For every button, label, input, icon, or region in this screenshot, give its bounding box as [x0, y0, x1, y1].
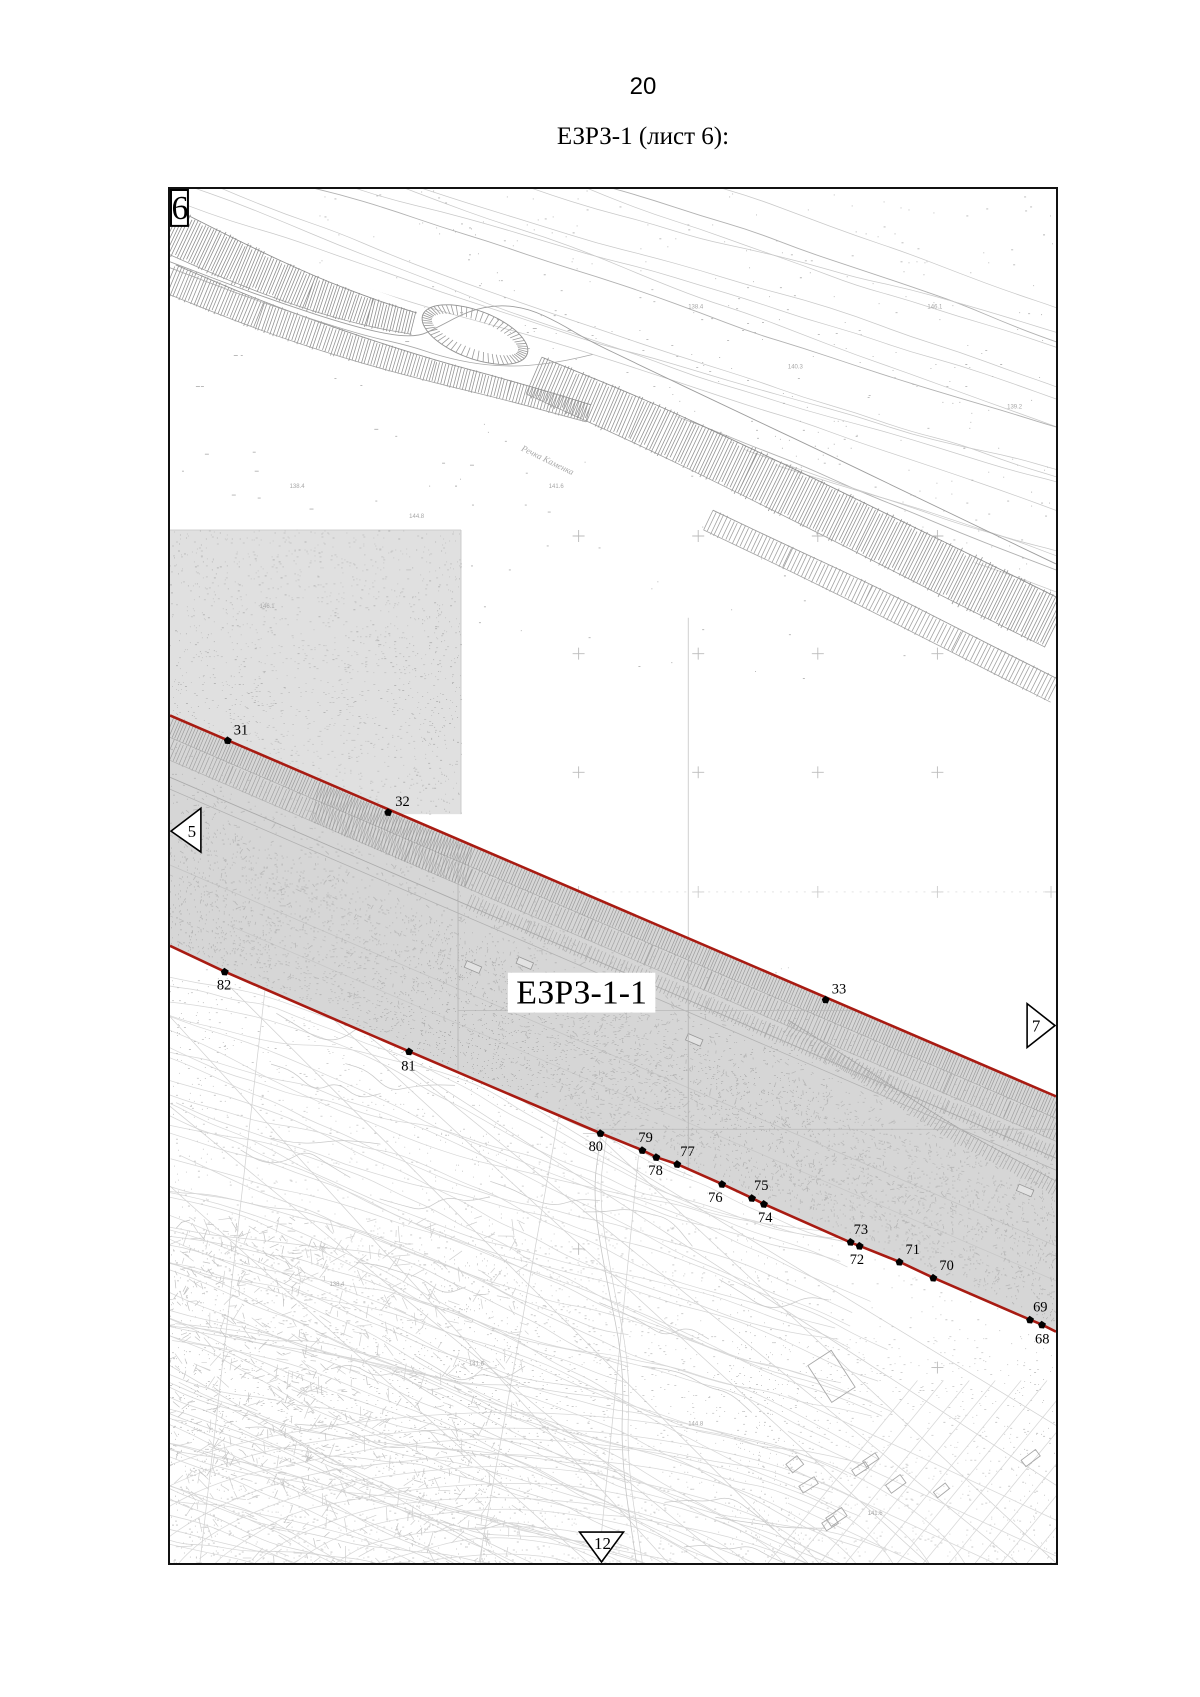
svg-text:76: 76	[708, 1190, 722, 1206]
svg-text:33: 33	[832, 982, 846, 998]
svg-text:78: 78	[648, 1163, 662, 1179]
svg-text:5: 5	[188, 822, 196, 841]
svg-text:138.4: 138.4	[329, 1282, 345, 1288]
svg-text:7: 7	[1032, 1017, 1040, 1036]
svg-text:70: 70	[939, 1258, 953, 1274]
svg-text:141.6: 141.6	[868, 1511, 884, 1517]
svg-text:82: 82	[217, 978, 231, 994]
svg-text:138.4: 138.4	[290, 484, 306, 490]
svg-text:139.2: 139.2	[1007, 404, 1023, 410]
svg-text:Речка Каменка: Речка Каменка	[519, 443, 576, 478]
svg-text:69: 69	[1033, 1300, 1047, 1316]
svg-text:79: 79	[638, 1130, 652, 1146]
svg-text:77: 77	[680, 1144, 694, 1160]
svg-text:140.3: 140.3	[788, 364, 804, 370]
svg-text:138.4: 138.4	[688, 305, 704, 311]
svg-text:68: 68	[1035, 1332, 1049, 1348]
svg-text:6: 6	[171, 190, 188, 227]
svg-text:144.8: 144.8	[409, 514, 425, 520]
svg-text:74: 74	[758, 1210, 772, 1226]
svg-text:72: 72	[850, 1252, 864, 1268]
svg-text:144.8: 144.8	[688, 1421, 704, 1427]
svg-text:80: 80	[589, 1139, 603, 1155]
svg-text:75: 75	[754, 1178, 768, 1194]
svg-text:32: 32	[395, 794, 409, 810]
svg-text:146.1: 146.1	[927, 305, 943, 311]
svg-text:71: 71	[906, 1242, 920, 1258]
svg-text:12: 12	[594, 1534, 611, 1553]
svg-text:146.1: 146.1	[260, 604, 276, 610]
svg-text:81: 81	[401, 1058, 415, 1074]
svg-text:141.6: 141.6	[549, 484, 565, 490]
svg-text:73: 73	[854, 1222, 868, 1238]
svg-text:ЕЗРЗ-1-1: ЕЗРЗ-1-1	[516, 975, 647, 1012]
svg-text:31: 31	[234, 722, 248, 738]
